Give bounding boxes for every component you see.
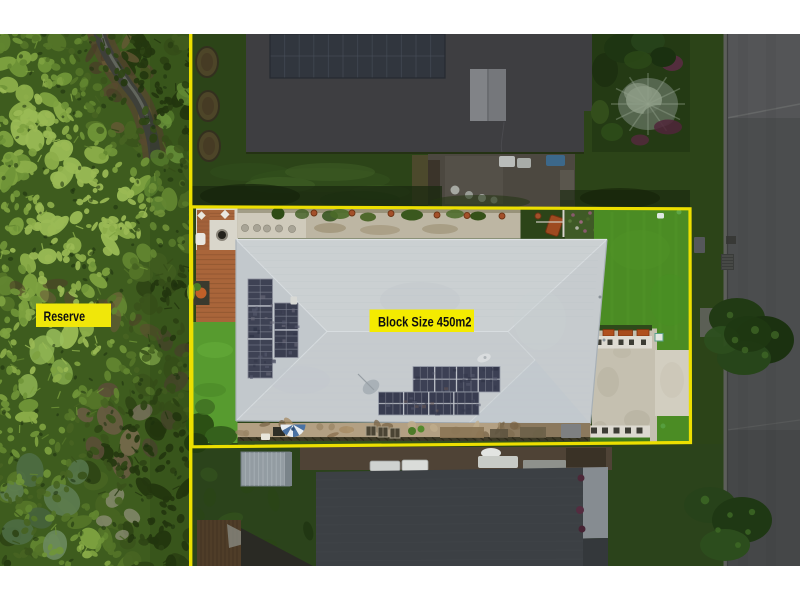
svg-text:Reserve: Reserve (44, 308, 86, 324)
svg-text:Block Size 450m2: Block Size 450m2 (378, 314, 472, 330)
